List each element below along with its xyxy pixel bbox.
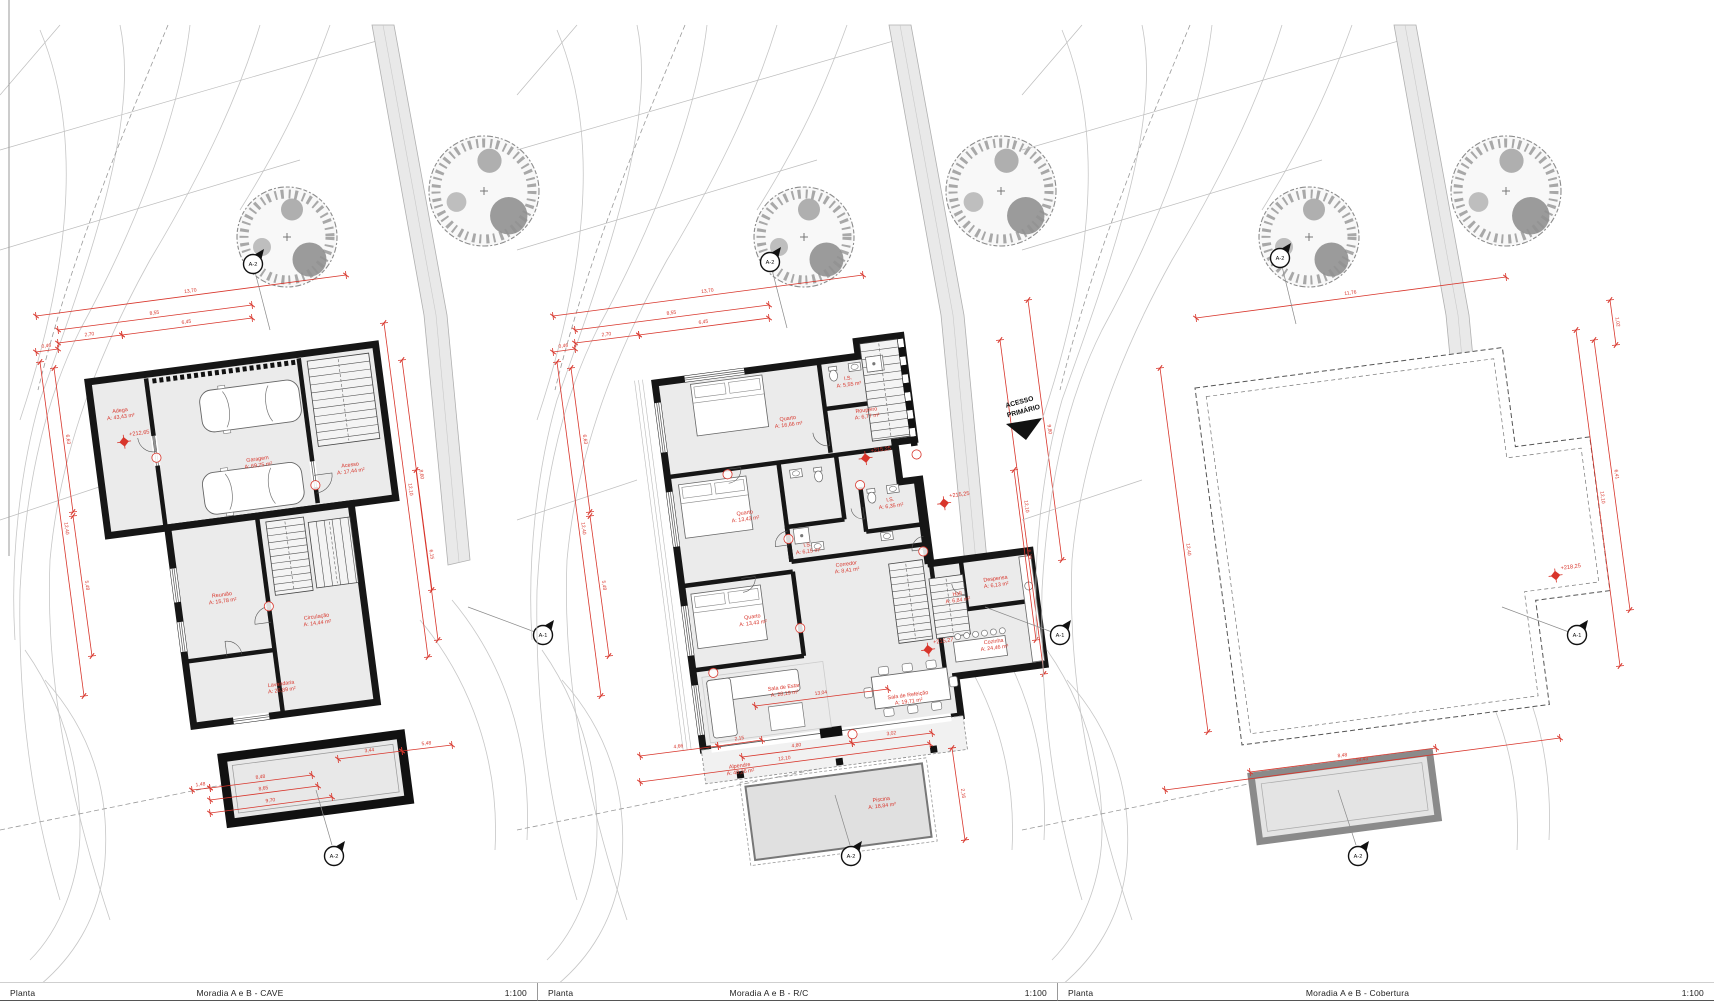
dimension-value: 2,70 bbox=[84, 331, 95, 338]
tree-foliage-clump bbox=[994, 149, 1018, 173]
tree-icon bbox=[1451, 136, 1561, 246]
section-marker: A-2 bbox=[325, 841, 346, 866]
chair-icon bbox=[907, 705, 918, 714]
contour-line bbox=[40, 680, 106, 985]
dimension-value: 1,02 bbox=[1614, 317, 1621, 328]
contour-line bbox=[25, 650, 80, 960]
section-marker: A-2 bbox=[1349, 841, 1370, 866]
drawing-type-label: Planta bbox=[10, 988, 35, 998]
dimension-value: 6,15 bbox=[428, 549, 435, 560]
stair-edge-checker bbox=[908, 419, 915, 429]
dimension-value: 6,15 bbox=[1026, 549, 1033, 560]
hatch-band bbox=[263, 363, 268, 368]
contour-line bbox=[542, 650, 597, 960]
dimension-value: 5,48 bbox=[421, 740, 432, 747]
level-marker-diamond bbox=[939, 499, 949, 509]
hatch-band bbox=[249, 365, 254, 370]
dimension: 8,55 bbox=[55, 301, 255, 334]
section-marker: A-1 bbox=[468, 607, 554, 645]
dimension-line bbox=[36, 349, 58, 352]
hatch-band bbox=[291, 360, 296, 365]
drawing-type-label: Planta bbox=[1068, 988, 1093, 998]
hatch-band bbox=[235, 367, 240, 372]
dimension-value: 13,70 bbox=[184, 288, 197, 296]
contour-line bbox=[240, 25, 330, 210]
section-label: A-1 bbox=[1056, 633, 1065, 639]
tree-foliage-clump bbox=[810, 243, 844, 277]
chair-icon bbox=[864, 687, 873, 698]
drawing-scale: 1:100 bbox=[505, 988, 527, 998]
hatch-band bbox=[159, 377, 164, 382]
hatch-band bbox=[152, 378, 157, 383]
dimension-value: 5,48 bbox=[600, 580, 607, 591]
stair-edge-checker bbox=[897, 338, 904, 348]
tree-foliage-clump bbox=[798, 199, 820, 221]
title-bar-segment-cobertura: Planta Moradia A e B - Cobertura 1:100 bbox=[1057, 983, 1714, 1001]
contour-line bbox=[420, 620, 496, 850]
dimension-value: 2,16 bbox=[959, 788, 966, 799]
car-mirror bbox=[220, 468, 227, 472]
section-label: A-1 bbox=[539, 633, 548, 639]
tree-foliage-clump bbox=[1499, 149, 1523, 173]
contour-line bbox=[557, 680, 623, 985]
section-label: A-2 bbox=[766, 260, 775, 266]
chair-icon bbox=[884, 708, 895, 717]
door-tag bbox=[911, 449, 921, 459]
section-label: A-2 bbox=[1354, 854, 1363, 860]
dimension-value: 6,41 bbox=[1613, 469, 1620, 480]
pool bbox=[1251, 752, 1438, 841]
bed-icon bbox=[690, 375, 768, 436]
contour-line bbox=[757, 25, 847, 210]
stair-edge-checker bbox=[901, 365, 908, 375]
stool-icon bbox=[954, 633, 961, 640]
tree-foliage-clump bbox=[447, 192, 467, 212]
section-label: A-2 bbox=[330, 854, 339, 860]
dimension: 6,45 bbox=[636, 314, 772, 339]
pool bbox=[222, 734, 409, 823]
sink-icon bbox=[886, 484, 899, 493]
hatch-band bbox=[222, 369, 227, 374]
tree-icon bbox=[946, 136, 1056, 246]
hatch-band bbox=[173, 375, 178, 380]
hatch-band bbox=[256, 364, 261, 369]
tree-foliage-clump bbox=[964, 192, 984, 212]
chair-icon bbox=[902, 663, 913, 672]
dimension-value: 1,48 bbox=[195, 781, 206, 788]
dimension-line bbox=[553, 275, 863, 316]
survey-line bbox=[1022, 480, 1142, 520]
bed-icon bbox=[678, 476, 752, 538]
roof-outline bbox=[1195, 338, 1624, 745]
dimension-line bbox=[36, 275, 346, 316]
panel-cave-drawing: AdegaA: 43,43 m²GaragemA: 69,75 m²Acesso… bbox=[88, 344, 435, 834]
drawing-title: Moradia A e B - R/C bbox=[730, 988, 809, 998]
floor-plan-sheet: AdegaA: 43,43 m²GaragemA: 69,75 m²Acesso… bbox=[0, 0, 1714, 1002]
stair-edge-checker bbox=[907, 410, 914, 420]
contour-line bbox=[452, 600, 528, 840]
dimension-value: 6,63 bbox=[64, 434, 71, 445]
title-bar-segment-rc: Planta Moradia A e B - R/C 1:100 bbox=[537, 983, 1057, 1001]
dimension-value: 12,10 bbox=[1598, 491, 1606, 504]
dimension-value: 12,10 bbox=[1022, 500, 1030, 513]
dimension-value: 8,48 bbox=[1337, 752, 1348, 759]
chair-icon bbox=[878, 666, 889, 675]
hatch-band bbox=[208, 371, 213, 376]
chair-icon bbox=[949, 676, 958, 687]
dimension-value: 12,40 bbox=[579, 522, 587, 535]
stair-edge-checker bbox=[903, 383, 910, 393]
stair-edge-checker bbox=[900, 356, 907, 366]
porch-post bbox=[836, 758, 844, 766]
contour-line bbox=[1262, 25, 1352, 210]
coffee-table bbox=[768, 703, 805, 731]
dimension: 1,02 bbox=[1606, 297, 1621, 348]
dimension-line bbox=[553, 349, 575, 352]
tree-foliage-clump bbox=[1007, 197, 1044, 234]
contour-line bbox=[1062, 680, 1128, 985]
tree-foliage-clump bbox=[281, 199, 303, 221]
stair-edge-checker bbox=[910, 436, 917, 446]
dimension: 2,16 bbox=[948, 745, 969, 843]
dimension-value: 9,80 bbox=[1046, 424, 1053, 435]
dimension-value: 11,76 bbox=[1344, 290, 1357, 298]
pool-wall bbox=[1251, 752, 1438, 841]
dimension: 6,45 bbox=[119, 314, 255, 339]
dimension-value: 12,40 bbox=[1184, 543, 1192, 556]
stool-icon bbox=[981, 630, 988, 637]
hatch-band bbox=[194, 373, 199, 378]
dimension-value: 8,60 bbox=[418, 469, 425, 480]
stool-icon bbox=[999, 627, 1006, 634]
drawing-scale: 1:100 bbox=[1025, 988, 1047, 998]
dimension-value: 5,48 bbox=[83, 580, 90, 591]
drawing-title: Moradia A e B - Cobertura bbox=[1306, 988, 1409, 998]
section-label: A-2 bbox=[847, 854, 856, 860]
dimension-value: 2,70 bbox=[601, 331, 612, 338]
dimension-value: 6,45 bbox=[698, 319, 709, 326]
stairs bbox=[308, 517, 358, 588]
tree-foliage-clump bbox=[490, 197, 527, 234]
hatch-band bbox=[284, 361, 289, 366]
survey-line bbox=[0, 40, 380, 150]
contour-line bbox=[1047, 650, 1102, 960]
dimension-value: 0,46 bbox=[558, 343, 569, 350]
contour-line bbox=[531, 25, 642, 640]
drawing-scale: 1:100 bbox=[1682, 988, 1704, 998]
dimension-line bbox=[192, 788, 210, 790]
contour-line bbox=[1042, 25, 1212, 900]
dimension-line bbox=[40, 362, 84, 696]
dimension-value: 8,55 bbox=[149, 310, 160, 317]
car-mirror bbox=[218, 385, 225, 389]
section-label: A-2 bbox=[1276, 256, 1285, 262]
sink-counter bbox=[790, 469, 803, 478]
contour-line bbox=[1042, 30, 1088, 420]
dimension: 5,48 bbox=[586, 513, 613, 659]
chair-icon bbox=[931, 701, 942, 710]
hatch-band bbox=[215, 370, 220, 375]
sink-counter bbox=[886, 484, 899, 493]
tree-foliage-clump bbox=[293, 243, 327, 277]
dimension-value: 8,55 bbox=[666, 310, 677, 317]
contour-line bbox=[14, 25, 125, 640]
porch-post bbox=[930, 745, 938, 753]
sink-icon bbox=[848, 362, 861, 371]
dimension: 5,48 bbox=[69, 513, 96, 659]
dimension: 2,70 bbox=[55, 331, 125, 347]
tree-foliage-clump bbox=[1512, 197, 1549, 234]
dimension-value: 9,70 bbox=[265, 797, 276, 804]
contour-line bbox=[1036, 25, 1147, 640]
survey-line bbox=[1022, 40, 1402, 150]
dimension-value: 4,80 bbox=[791, 742, 802, 749]
dimension-value: 3,44 bbox=[364, 747, 375, 754]
dimension-value: 6,45 bbox=[181, 319, 192, 326]
tree-foliage-clump bbox=[1469, 192, 1489, 212]
hatch-band bbox=[270, 363, 275, 368]
tree-foliage-clump bbox=[1315, 243, 1349, 277]
dimension: 6,15 bbox=[412, 467, 442, 643]
tree-icon bbox=[1259, 187, 1359, 287]
stairs bbox=[929, 574, 971, 638]
dimension-value: 0,46 bbox=[41, 343, 52, 350]
hatch-band bbox=[166, 376, 171, 381]
drawing-type-label: Planta bbox=[548, 988, 573, 998]
dimension: 8,55 bbox=[572, 301, 772, 334]
sink-counter bbox=[848, 362, 861, 371]
survey-line bbox=[517, 40, 897, 150]
dimension-value: 4,66 bbox=[673, 743, 684, 750]
access-note: ACESSOPRIMÁRIO bbox=[1005, 395, 1042, 440]
dimension-line bbox=[557, 362, 601, 696]
shower-icon bbox=[865, 355, 882, 372]
stool-icon bbox=[972, 631, 979, 638]
stair-edge-checker bbox=[902, 374, 909, 384]
sink-counter bbox=[880, 531, 893, 540]
hatch-band bbox=[277, 362, 282, 367]
stair-edge-checker bbox=[906, 401, 913, 411]
stair-edge-checker bbox=[899, 347, 906, 357]
tree-foliage-clump bbox=[1303, 199, 1325, 221]
panel-rc-drawing: QuartoA: 16,66 m²I.S.A: 5,55 m²RoupeiroA… bbox=[633, 322, 1066, 872]
stair-edge-checker bbox=[909, 427, 916, 437]
stool-icon bbox=[990, 629, 997, 636]
car-mirror bbox=[224, 430, 231, 434]
sink-icon bbox=[880, 531, 893, 540]
hatch-band bbox=[228, 368, 233, 373]
car-mirror bbox=[226, 512, 233, 516]
dimension-value: 12,10 bbox=[406, 483, 414, 496]
dimension-value: 8,65 bbox=[258, 785, 269, 792]
section-label: A-2 bbox=[249, 262, 258, 268]
hatch-band bbox=[180, 374, 185, 379]
panel-cobertura-drawing: +218,25 bbox=[1195, 338, 1636, 842]
hatch-band bbox=[187, 374, 192, 379]
stairs bbox=[307, 353, 380, 446]
dimension-value: 12,40 bbox=[62, 522, 70, 535]
dimension-value: 3,02 bbox=[886, 730, 897, 737]
section-label: A-1 bbox=[1573, 633, 1582, 639]
dimension: 2,70 bbox=[572, 331, 642, 347]
dimension-value: 8,48 bbox=[255, 774, 266, 781]
stool-icon bbox=[963, 632, 970, 639]
dimension: 12,40 bbox=[553, 359, 605, 699]
pool-wall bbox=[222, 734, 409, 823]
title-bar: Planta Moradia A e B - CAVE 1:100 Planta… bbox=[0, 982, 1714, 1001]
chair-icon bbox=[926, 660, 937, 669]
hatch-band bbox=[201, 372, 206, 377]
title-bar-segment-cave: Planta Moradia A e B - CAVE 1:100 bbox=[0, 983, 537, 1001]
drawing-title: Moradia A e B - CAVE bbox=[197, 988, 284, 998]
dimension-value: 13,70 bbox=[701, 288, 714, 296]
dimension-value: 6,63 bbox=[581, 434, 588, 445]
dimension: 12,40 bbox=[36, 359, 88, 699]
tree-icon bbox=[429, 136, 539, 246]
tree-foliage-clump bbox=[477, 149, 501, 173]
sink-icon bbox=[790, 469, 803, 478]
hatch-band bbox=[242, 366, 247, 371]
stair-edge-checker bbox=[904, 392, 911, 402]
